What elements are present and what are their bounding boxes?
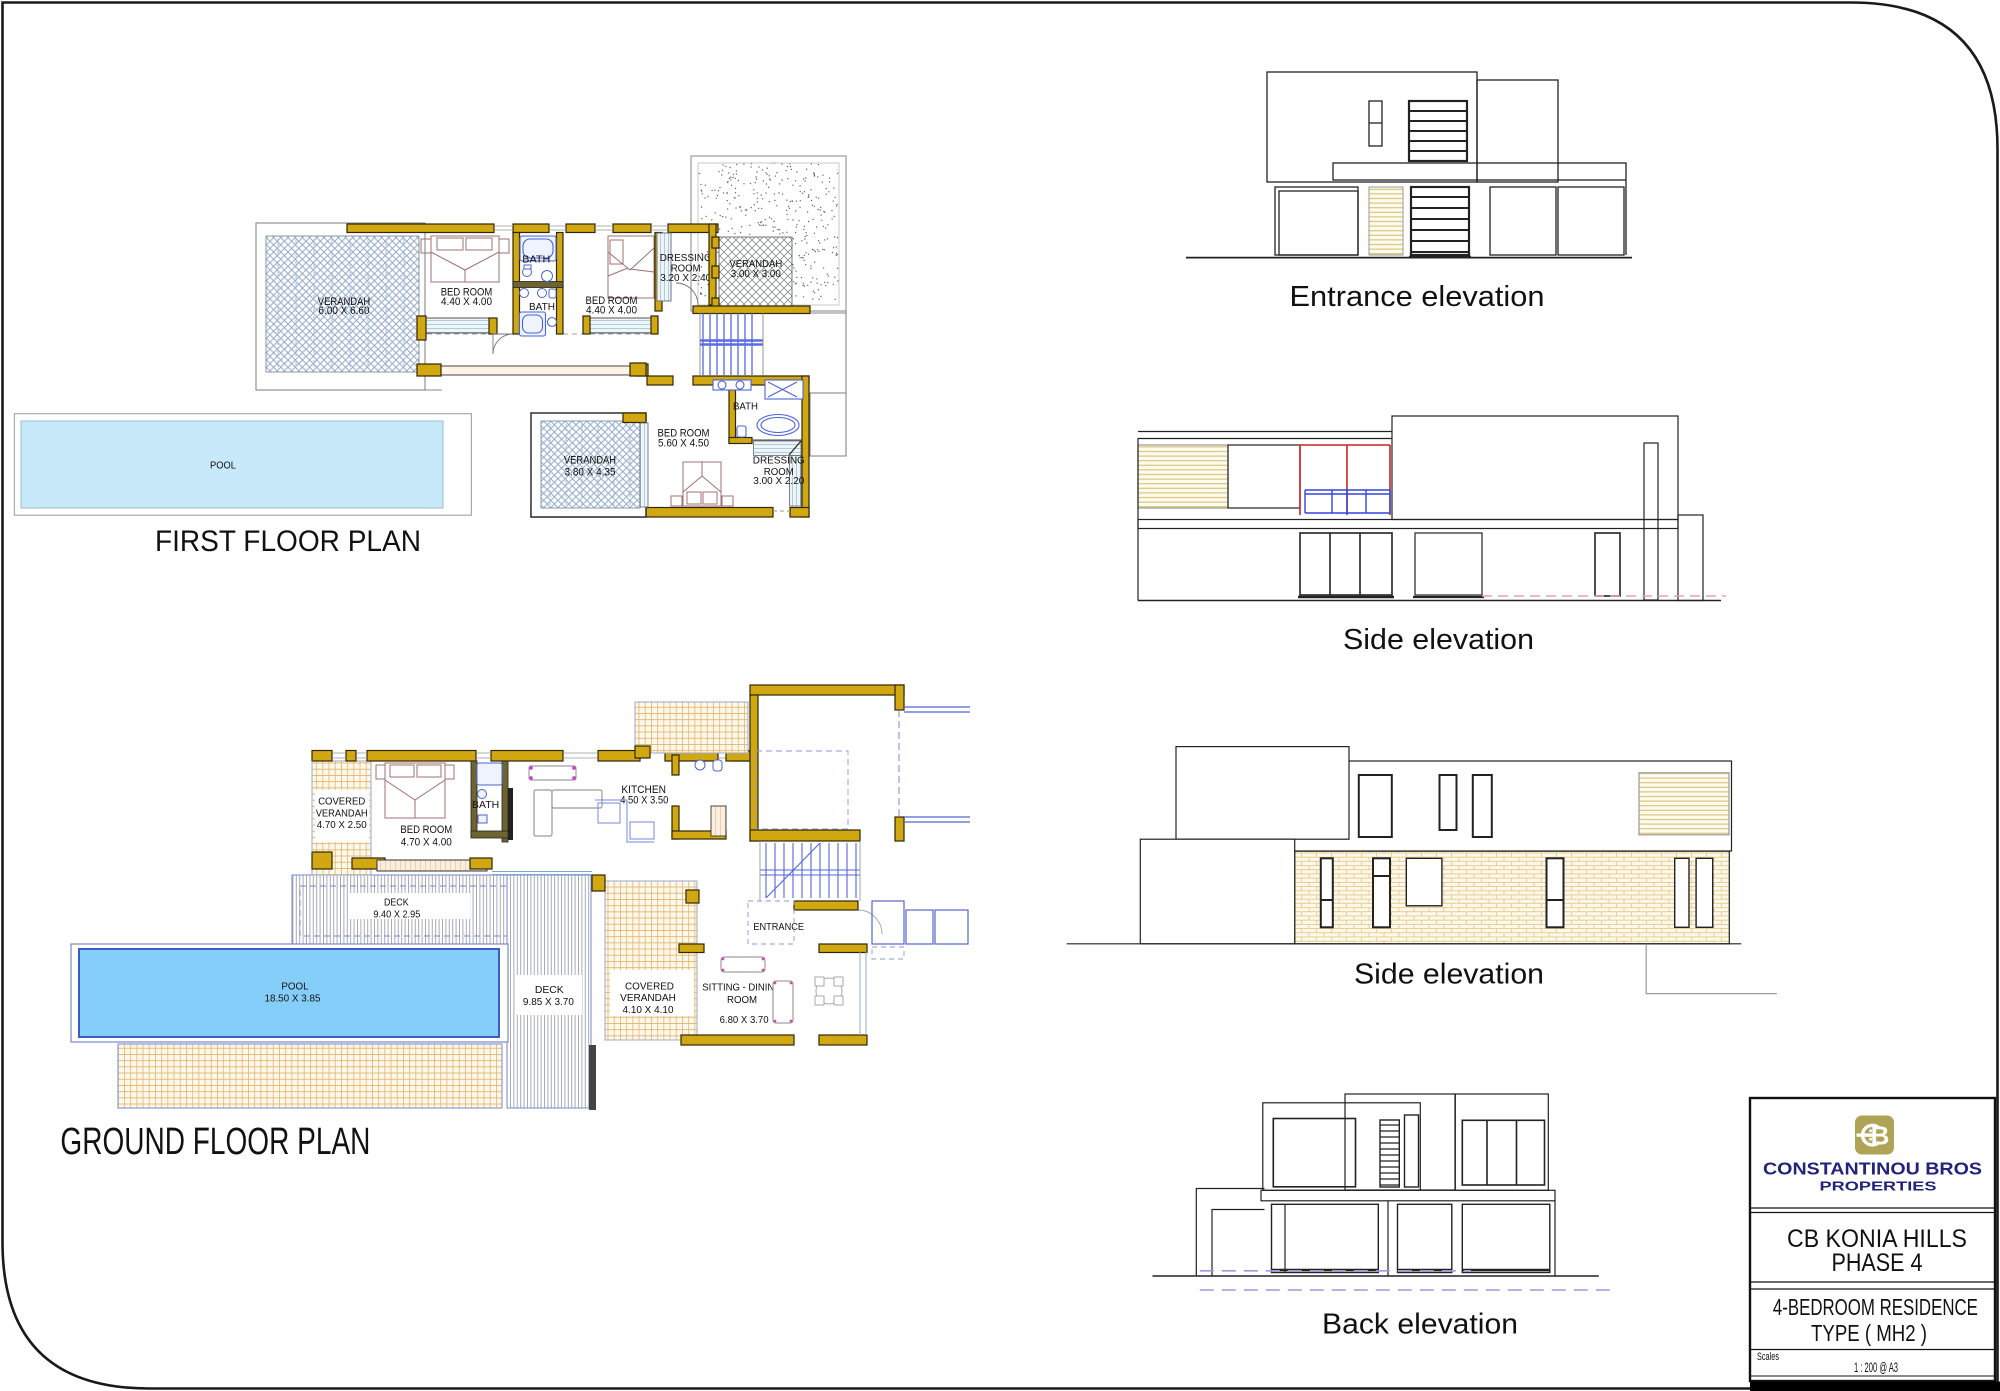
svg-text:COVERED: COVERED	[625, 980, 674, 992]
svg-text:B: B	[1871, 1121, 1890, 1151]
svg-text:BATH: BATH	[522, 254, 550, 265]
svg-text:5.60 X 4.50: 5.60 X 4.50	[658, 438, 709, 450]
svg-text:SITTING - DINING: SITTING - DINING	[702, 982, 781, 994]
svg-text:3.00 X 2.20: 3.00 X 2.20	[753, 475, 804, 487]
svg-text:4-BEDROOM RESIDENCE: 4-BEDROOM RESIDENCE	[1773, 1294, 1978, 1320]
svg-text:4.70 X 4.00: 4.70 X 4.00	[401, 837, 452, 849]
svg-text:VERANDAH: VERANDAH	[316, 808, 368, 819]
svg-text:Side elevation: Side elevation	[1343, 624, 1534, 656]
svg-text:DRESSING: DRESSING	[753, 455, 805, 467]
svg-text:BATH: BATH	[733, 401, 758, 413]
svg-text:CONSTANTINOU BROS: CONSTANTINOU BROS	[1763, 1159, 1982, 1179]
svg-text:4.70 X 2.50: 4.70 X 2.50	[317, 820, 367, 831]
svg-text:FIRST FLOOR PLAN: FIRST FLOOR PLAN	[155, 525, 421, 558]
svg-text:DECK: DECK	[384, 897, 409, 909]
svg-text:4.10 X 4.10: 4.10 X 4.10	[623, 1004, 674, 1016]
svg-text:VERANDAH: VERANDAH	[620, 992, 676, 1004]
svg-text:DECK: DECK	[535, 984, 564, 996]
svg-text:ROOM: ROOM	[727, 994, 757, 1006]
svg-text:BATH: BATH	[472, 800, 499, 811]
svg-text:VERANDAH: VERANDAH	[564, 455, 616, 467]
svg-text:BATH: BATH	[529, 302, 555, 313]
svg-text:TYPE ( MH2 ): TYPE ( MH2 )	[1811, 1320, 1927, 1346]
svg-text:6.80 X 3.70: 6.80 X 3.70	[720, 1014, 769, 1026]
svg-text:BED ROOM: BED ROOM	[400, 824, 452, 836]
svg-text:POOL: POOL	[281, 981, 308, 993]
svg-text:6.00 X 6.60: 6.00 X 6.60	[319, 305, 370, 317]
svg-text:4.40 X 4.00: 4.40 X 4.00	[441, 296, 492, 308]
svg-text:4.40 X 4.00: 4.40 X 4.00	[586, 305, 637, 317]
svg-text:3.00 X 3.00: 3.00 X 3.00	[731, 268, 781, 280]
svg-text:POOL: POOL	[210, 459, 236, 471]
svg-text:Entrance elevation: Entrance elevation	[1290, 281, 1545, 313]
svg-text:3.80 X 4.35: 3.80 X 4.35	[565, 466, 616, 478]
svg-text:9.40 X 2.95: 9.40 X 2.95	[373, 908, 420, 920]
svg-text:ENTRANCE: ENTRANCE	[753, 921, 804, 933]
svg-text:Scales: Scales	[1757, 1351, 1779, 1363]
svg-text:3.20 X 2.40: 3.20 X 2.40	[660, 272, 711, 284]
svg-text:18.50 X 3.85: 18.50 X 3.85	[264, 992, 320, 1004]
svg-text:Back elevation: Back elevation	[1322, 1309, 1518, 1341]
svg-text:PROPERTIES: PROPERTIES	[1820, 1179, 1937, 1194]
svg-text:GROUND FLOOR PLAN: GROUND FLOOR PLAN	[60, 1121, 370, 1163]
svg-text:COVERED: COVERED	[318, 797, 365, 808]
svg-text:1 : 200 @ A3: 1 : 200 @ A3	[1854, 1360, 1898, 1375]
svg-text:9.85 X 3.70: 9.85 X 3.70	[523, 996, 574, 1008]
svg-text:Side elevation: Side elevation	[1354, 959, 1544, 991]
svg-text:PHASE 4: PHASE 4	[1832, 1249, 1923, 1277]
